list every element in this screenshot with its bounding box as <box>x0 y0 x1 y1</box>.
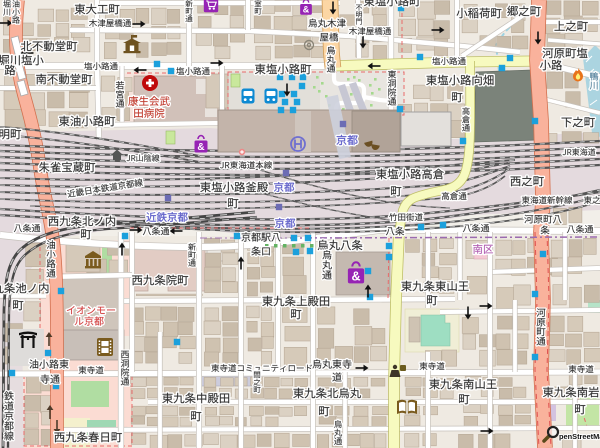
svg-text:&: & <box>303 5 310 15</box>
svg-text:penStreetMap: penStreetMap <box>559 432 600 441</box>
svg-text:&: & <box>197 142 204 153</box>
svg-text:&: & <box>351 269 360 283</box>
